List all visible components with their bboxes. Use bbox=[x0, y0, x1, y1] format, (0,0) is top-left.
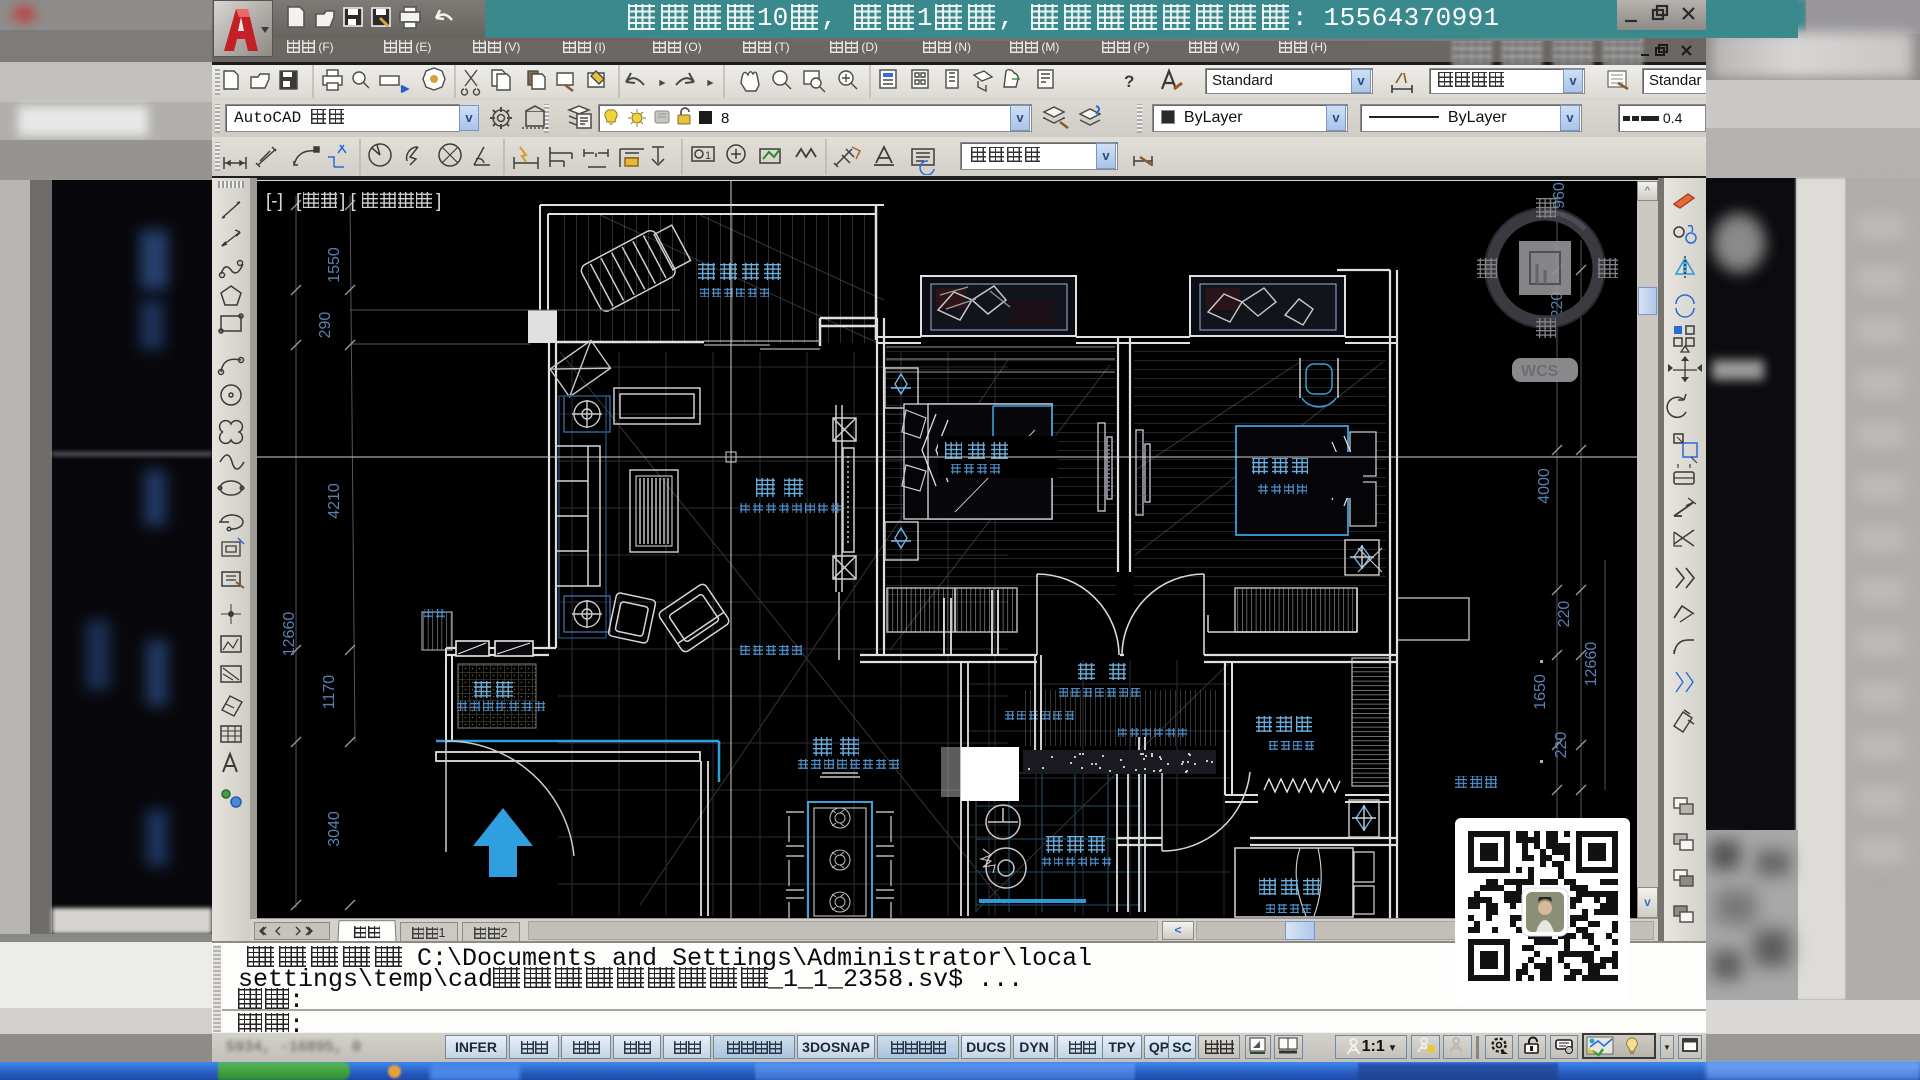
svg-text:4210: 4210 bbox=[326, 483, 343, 519]
svg-text:12660: 12660 bbox=[1583, 642, 1600, 687]
svg-text:4000: 4000 bbox=[1536, 468, 1553, 504]
svg-text:220: 220 bbox=[1553, 732, 1570, 759]
svg-text:3040: 3040 bbox=[326, 811, 343, 847]
svg-text:290: 290 bbox=[317, 312, 334, 339]
svg-text:1170: 1170 bbox=[321, 675, 338, 710]
svg-text:?: ? bbox=[1124, 72, 1134, 91]
svg-text:1550: 1550 bbox=[326, 247, 343, 283]
svg-text:[-]: [-] bbox=[266, 191, 283, 212]
svg-text:12660: 12660 bbox=[281, 612, 298, 657]
svg-text:[: [ bbox=[296, 191, 302, 212]
svg-text:]: ] bbox=[436, 191, 441, 212]
svg-text:WCS: WCS bbox=[1521, 363, 1559, 380]
svg-text:] [: ] [ bbox=[340, 191, 357, 212]
svg-text:8: 8 bbox=[721, 110, 729, 127]
svg-text:1: 1 bbox=[705, 150, 711, 162]
svg-text:220: 220 bbox=[1556, 601, 1573, 628]
svg-text:1650: 1650 bbox=[1532, 674, 1549, 710]
